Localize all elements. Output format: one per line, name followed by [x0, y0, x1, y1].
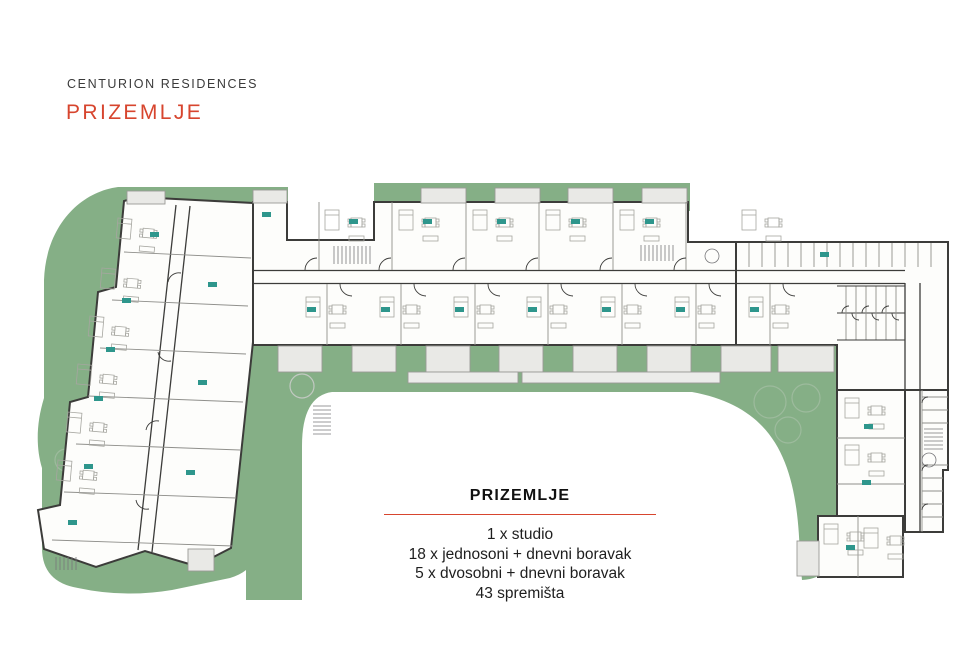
wing-right-bottom-apartment	[818, 516, 903, 577]
legend-title: PRIZEMLJE	[340, 487, 700, 505]
stair-hatch	[313, 406, 331, 434]
legend-item-one-bedroom: 18 x jednosoni + dnevni boravak	[340, 545, 700, 565]
legend-item-studio: 1 x studio	[340, 525, 700, 545]
legend-item-storage: 43 spremišta	[340, 584, 700, 604]
project-name: CENTURION RESIDENCES	[67, 77, 258, 91]
planter-strip	[408, 372, 518, 383]
wing-right-column	[905, 390, 948, 532]
page-title: PRIZEMLJE	[66, 101, 203, 125]
legend-rule	[384, 514, 656, 515]
wing-horizontal	[253, 202, 736, 345]
legend: PRIZEMLJE 1 x studio 18 x jednosoni + dn…	[340, 487, 700, 603]
legend-item-two-bedroom: 5 x dvosobni + dnevni boravak	[340, 564, 700, 584]
planter-strip	[522, 372, 720, 383]
